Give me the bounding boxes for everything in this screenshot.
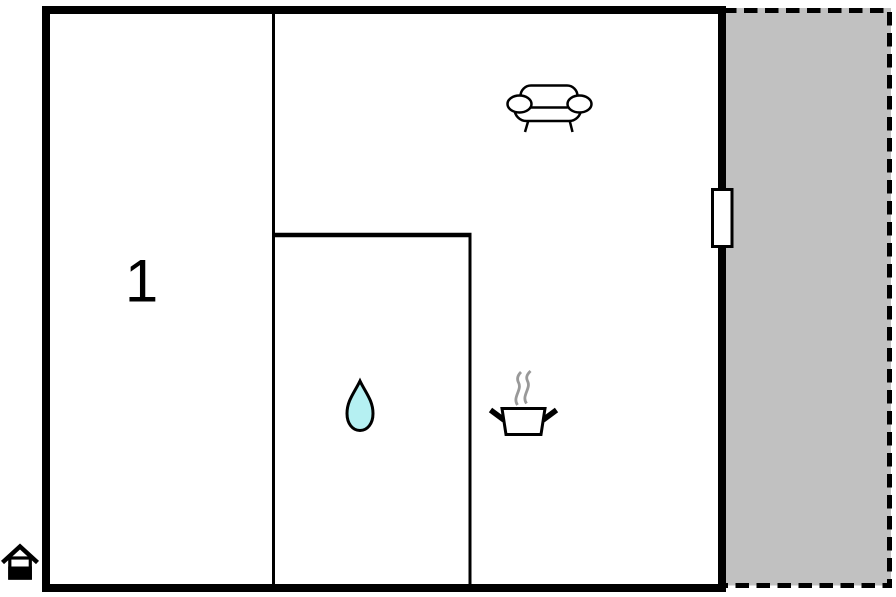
pot-body (502, 409, 545, 435)
sofa-armrest-right (568, 96, 592, 113)
room-1-label: 1 (125, 248, 158, 315)
window-icon (713, 190, 733, 247)
floor-plan-canvas: 1 (0, 0, 896, 597)
terrace-area (722, 8, 891, 586)
terrace (722, 8, 891, 586)
floor-plan: 1 (0, 0, 896, 597)
house-entrance-icon (3, 547, 38, 580)
house-body-filled-half (8, 567, 32, 580)
sofa-armrest-left (508, 96, 532, 113)
